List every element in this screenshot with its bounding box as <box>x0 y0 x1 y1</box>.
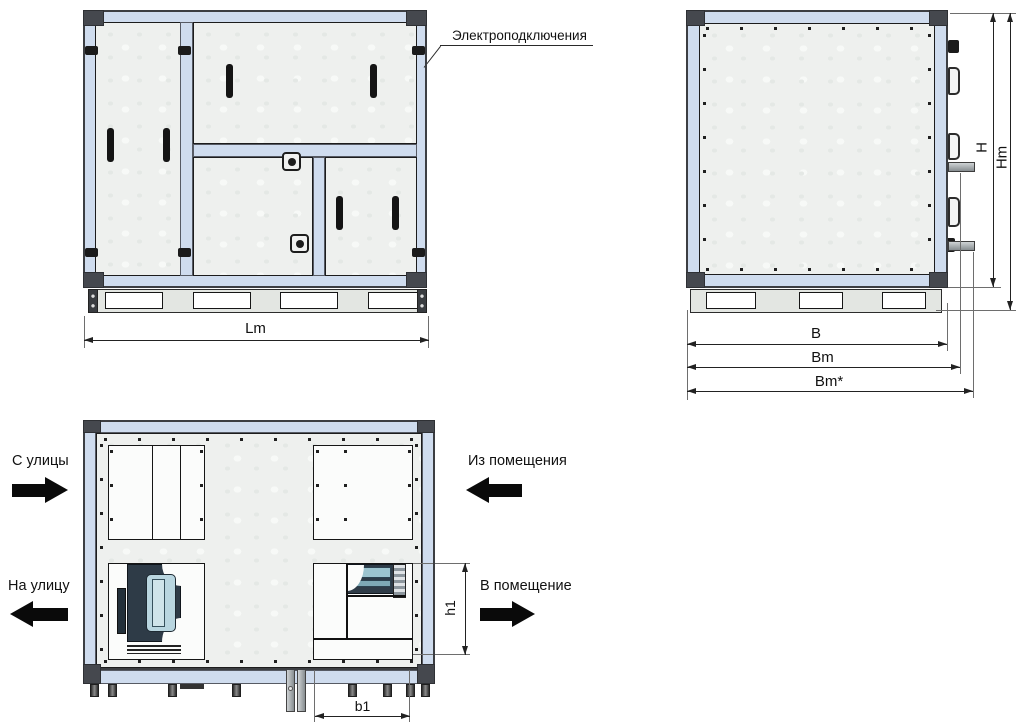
hinge-bracket <box>948 67 960 95</box>
foot <box>348 684 357 697</box>
screw-column <box>415 444 418 656</box>
frame-corner <box>686 10 705 26</box>
door-panel <box>193 157 313 276</box>
airflow-arrow-left-icon <box>489 484 522 497</box>
foot <box>168 684 177 697</box>
dimension-label-b1: b1 <box>315 699 410 713</box>
screw-column <box>100 444 103 656</box>
dimension-line-lm <box>84 340 429 341</box>
technical-drawing-canvas: Lm Электроподключения <box>0 0 1024 725</box>
airflow-arrow-left-icon <box>466 477 489 503</box>
screw-row <box>104 660 414 663</box>
door-handle <box>392 196 399 230</box>
frame-corner <box>83 10 104 26</box>
hinge-bracket <box>948 133 960 160</box>
fan-motor <box>117 588 126 634</box>
foot <box>90 684 99 697</box>
frame-strip-right <box>422 420 435 670</box>
frame-strip-bottom <box>686 274 948 288</box>
airflow-label-from-street: С улицы <box>12 453 69 469</box>
extension-line <box>428 316 429 348</box>
base-slot <box>882 292 926 309</box>
front-view: Lm Электроподключения <box>83 10 613 355</box>
base-endcap <box>417 289 427 313</box>
airflow-arrow-left-icon <box>33 608 68 621</box>
dimension-label-lm: Lm <box>83 321 428 336</box>
dimension-line-bm <box>687 367 960 368</box>
frame-strip-left <box>686 10 700 288</box>
dimension-label-hm: Hm <box>995 138 1010 178</box>
panel-divider <box>313 638 413 640</box>
electrical-callout-label: Электроподключения <box>452 28 587 43</box>
screw-row <box>706 268 930 271</box>
foot <box>232 684 241 697</box>
panel-divider <box>346 564 348 640</box>
airflow-label-to-street: На улицу <box>8 578 70 594</box>
dimension-line-b <box>687 344 947 345</box>
dimension-line-bm-star <box>687 391 973 392</box>
dimension-line-b1 <box>315 716 410 717</box>
latch <box>412 46 425 55</box>
frame-corner <box>929 272 948 288</box>
screw-row <box>104 438 414 441</box>
frame-corner <box>417 664 435 684</box>
airflow-arrow-right-icon <box>45 477 68 503</box>
screw-column <box>110 450 113 536</box>
extension-line <box>973 252 974 398</box>
panel-divider <box>180 446 181 539</box>
frame-corner <box>406 10 427 26</box>
fan-mount-line <box>127 645 181 647</box>
frame-mullion <box>313 157 325 276</box>
frame-strip-left <box>83 420 96 670</box>
extension-line <box>947 303 948 351</box>
callout-underline <box>440 45 593 46</box>
pipe-stub <box>948 241 975 251</box>
frame-corner <box>83 420 101 433</box>
extension-line <box>936 310 1016 311</box>
side-view: H Hm B Bm Bm* <box>686 10 1024 415</box>
door-handle <box>107 128 114 162</box>
dimension-label-h: H <box>975 133 990 163</box>
drain-fitting <box>290 234 309 253</box>
fan-impeller-blade <box>355 580 391 587</box>
extension-line <box>941 287 1001 288</box>
fitting-core <box>288 158 296 166</box>
frame-mullion <box>180 22 193 276</box>
dimension-label-b: B <box>686 326 946 341</box>
airflow-label-from-room: Из помещения <box>468 453 567 469</box>
drain-hole <box>288 686 293 691</box>
frame-corner <box>83 664 101 684</box>
screw-column <box>928 34 931 266</box>
base-slot <box>799 292 843 309</box>
frame-strip-top <box>83 420 435 433</box>
electrical-gland <box>948 40 959 53</box>
latch <box>412 248 425 257</box>
dimension-label-h1: h1 <box>443 590 457 626</box>
base-slot <box>105 292 163 309</box>
drain-fitting <box>282 152 301 171</box>
screw-column <box>344 450 347 536</box>
airflow-label-to-room: В помещение <box>480 578 572 594</box>
frame-corner <box>406 272 427 288</box>
door-handle <box>163 128 170 162</box>
frame-corner <box>417 420 435 433</box>
latch <box>85 248 98 257</box>
dimension-label-bm: Bm <box>686 350 959 365</box>
pipe-stub <box>948 162 975 172</box>
screw-column <box>408 450 411 536</box>
fan-motor <box>393 564 406 598</box>
frame-corner <box>83 272 104 288</box>
screw-row <box>706 27 930 30</box>
door-handle <box>226 64 233 98</box>
base-endcap <box>88 289 98 313</box>
airflow-arrow-right-icon <box>512 601 535 627</box>
screw-column <box>703 34 706 266</box>
frame-rail <box>193 144 417 157</box>
base-slot <box>193 292 251 309</box>
screw-column <box>316 450 319 536</box>
door-handle <box>336 196 343 230</box>
dimension-line-h1 <box>465 563 466 655</box>
airflow-arrow-left-icon <box>10 601 33 627</box>
side-panel <box>699 23 935 275</box>
access-panel <box>313 445 413 540</box>
hinge-bracket <box>948 197 960 227</box>
frame-strip-bottom <box>83 274 427 288</box>
latch <box>178 248 191 257</box>
duct-line <box>346 595 406 597</box>
access-panel <box>108 445 205 540</box>
airflow-arrow-right-icon <box>12 484 45 497</box>
frame-corner <box>929 10 948 26</box>
foot <box>406 684 415 697</box>
mount-plate <box>180 684 204 689</box>
foot <box>383 684 392 697</box>
plan-view: h1 b1 С улицы Из помещения На улицу В по… <box>0 418 620 725</box>
fan-mount-line <box>127 649 181 651</box>
base-slot <box>280 292 338 309</box>
fan-mount-line <box>127 653 181 654</box>
frame-corner <box>686 272 705 288</box>
door-handle <box>370 64 377 98</box>
fan-impeller-blade <box>152 579 165 627</box>
foot <box>108 684 117 697</box>
drain-pipe <box>297 668 306 712</box>
extension-line <box>960 173 961 374</box>
base-strip <box>88 670 432 684</box>
base-slot <box>706 292 756 309</box>
screw-column <box>200 450 203 536</box>
latch <box>85 46 98 55</box>
latch <box>178 46 191 55</box>
fitting-core <box>296 240 304 248</box>
dimension-label-bm-star: Bm* <box>686 374 972 389</box>
frame-strip-top <box>686 10 948 24</box>
foot <box>421 684 430 697</box>
panel-divider <box>152 446 153 539</box>
airflow-arrow-right-icon <box>480 608 512 621</box>
